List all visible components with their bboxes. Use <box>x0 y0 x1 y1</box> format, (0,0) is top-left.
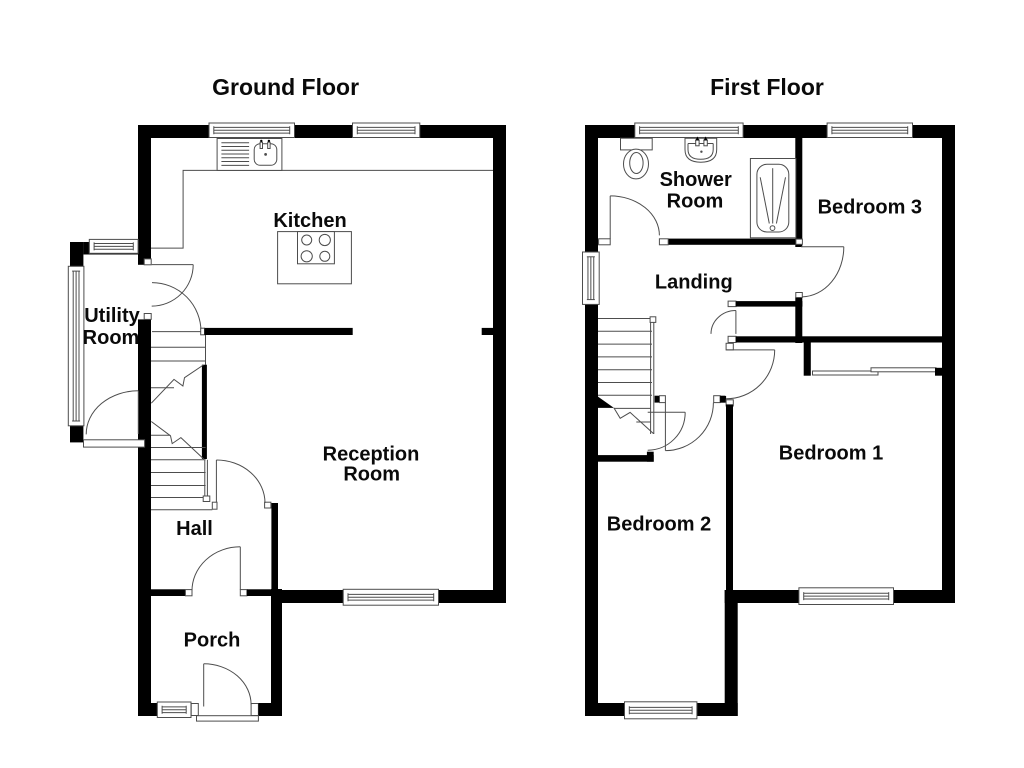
svg-text:Reception: Reception <box>323 444 420 466</box>
svg-text:Shower: Shower <box>660 169 732 191</box>
svg-text:Kitchen: Kitchen <box>273 210 346 232</box>
svg-text:Room: Room <box>83 327 140 349</box>
svg-text:Room: Room <box>667 190 724 212</box>
svg-text:Room: Room <box>343 464 400 486</box>
svg-text:Bedroom 3: Bedroom 3 <box>818 196 922 218</box>
svg-text:Bedroom 1: Bedroom 1 <box>779 443 883 465</box>
svg-text:Hall: Hall <box>176 518 213 540</box>
svg-text:Landing: Landing <box>655 272 733 294</box>
svg-text:Utility: Utility <box>84 305 140 327</box>
svg-text:Ground Floor: Ground Floor <box>212 74 359 100</box>
svg-text:Porch: Porch <box>184 630 241 652</box>
svg-text:First Floor: First Floor <box>710 74 824 100</box>
svg-text:Bedroom 2: Bedroom 2 <box>607 513 711 535</box>
